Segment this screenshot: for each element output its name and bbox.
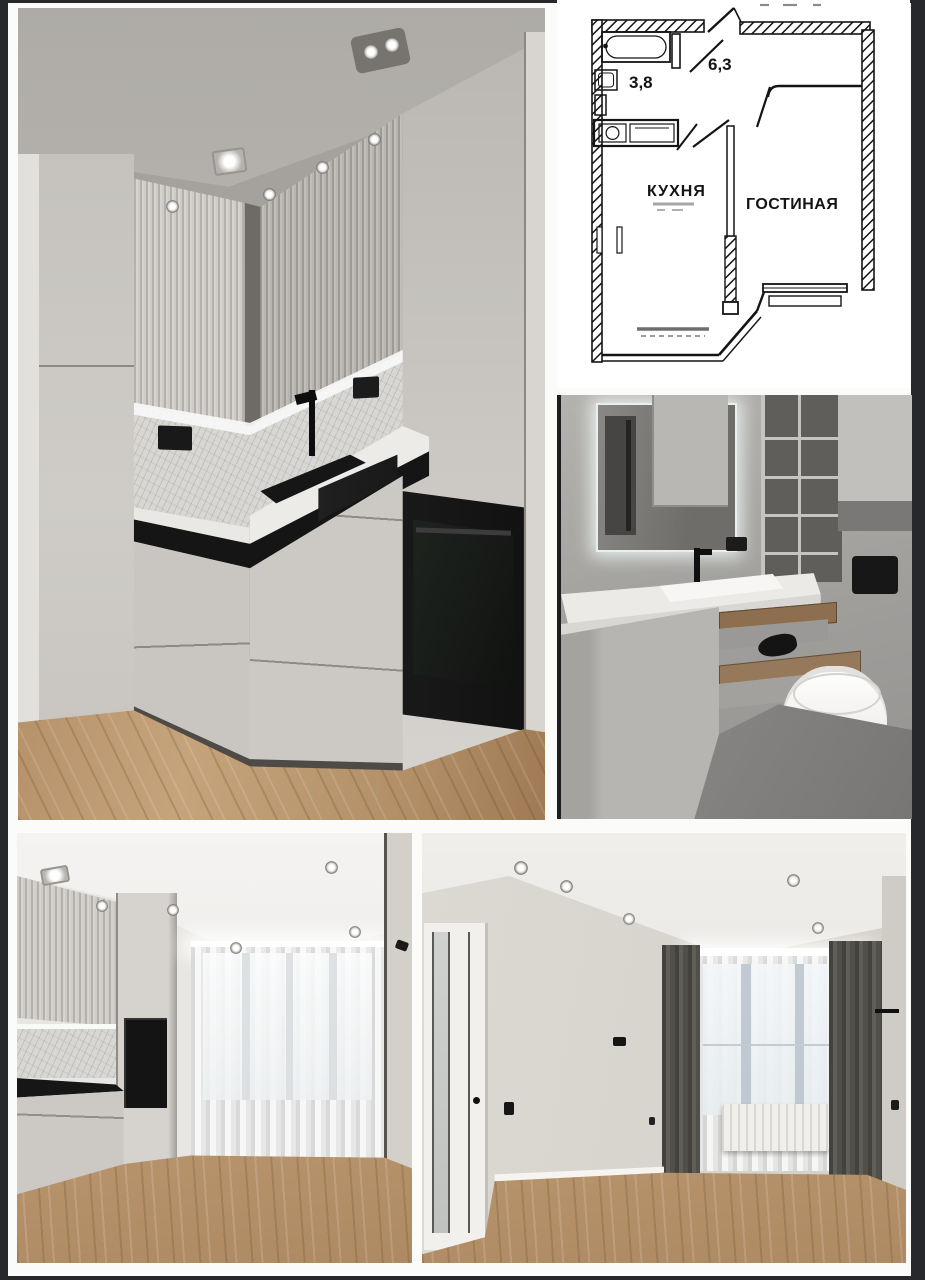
- right-niche: [838, 501, 912, 531]
- kl-led-strip: [17, 1024, 116, 1029]
- square-spotlight: [211, 147, 247, 176]
- kitchen-right-wall: [524, 32, 545, 730]
- lr-right-switch: [891, 1100, 899, 1110]
- kitchen-label: КУХНЯ: [647, 183, 706, 200]
- lr-switch: [504, 1102, 514, 1115]
- bathroom-partition: [672, 34, 723, 150]
- kitchen-left-wall: [18, 154, 41, 722]
- lr-drape-left: [662, 945, 701, 1173]
- lr-switch: [649, 1117, 655, 1125]
- kitchen-left-cabinet: [39, 154, 134, 722]
- backsplash-switch-panel: [158, 426, 192, 452]
- bathroom-faucet-spout: [694, 549, 712, 555]
- kl-backsplash: [17, 1027, 116, 1079]
- balcony-glazing: [602, 292, 764, 361]
- spotlight: [349, 926, 361, 938]
- lr-window-sill-line: [703, 1044, 848, 1046]
- backsplash-switch-panel-2: [353, 377, 379, 399]
- mirror-shower-reflection: [605, 416, 637, 535]
- mirror-cabinet: [652, 395, 728, 507]
- bathroom-photo[interactable]: [557, 395, 912, 819]
- kl-oven: [124, 1018, 167, 1108]
- toilet-seat-line: [793, 673, 881, 715]
- frame-right: [911, 0, 925, 1280]
- entrance-door: [708, 8, 741, 32]
- frame-bottom: [0, 1276, 925, 1280]
- spotlight: [623, 913, 635, 925]
- bathroom-area-label: 3,8: [629, 73, 653, 92]
- lr-radiator: [722, 1104, 828, 1151]
- spotlight: [316, 161, 329, 174]
- spotlight: [363, 44, 379, 60]
- lr-window-mullion: [795, 964, 805, 1115]
- kl-window-mullion: [329, 953, 337, 1099]
- kl-window-mullion: [242, 953, 250, 1099]
- lr-drape-right: [829, 941, 882, 1195]
- living-room-window: [763, 284, 847, 306]
- photo-collage: 3,8 6,3 КУХНЯ ГОСТИНАЯ: [0, 0, 925, 1280]
- upper-right-cabinet: [838, 395, 912, 504]
- spotlight: [166, 200, 179, 213]
- kitchen-left-cabinet-seam: [39, 365, 134, 367]
- bathroom-wall-switch: [726, 537, 747, 551]
- washer-and-vanity: [594, 120, 678, 146]
- kitchen-living-photo[interactable]: [17, 833, 412, 1263]
- frame-left: [0, 0, 8, 1280]
- living-room-label: ГОСТИНАЯ: [746, 196, 838, 213]
- spotlight: [96, 900, 108, 912]
- shelf-divider: [798, 395, 801, 582]
- spotlight: [812, 922, 824, 934]
- lr-door-glass: [432, 932, 451, 1233]
- lr-door-stile: [468, 932, 470, 1233]
- mirror-shower-bar: [626, 420, 631, 530]
- hallway-area-label: 6,3: [708, 55, 732, 74]
- lr-curtain-rod-end: [875, 1009, 899, 1013]
- kitchen-wall-marks: [597, 227, 622, 253]
- lr-window-mullion: [741, 964, 751, 1115]
- floorplan-diagram[interactable]: 3,8 6,3 КУХНЯ ГОСТИНАЯ: [557, 0, 910, 388]
- living-room-photo[interactable]: [422, 833, 906, 1263]
- lr-switch: [613, 1037, 626, 1046]
- lr-window-core: [703, 964, 848, 1115]
- kl-window-mullion: [286, 953, 294, 1099]
- kitchen-photo[interactable]: [18, 8, 545, 820]
- bathtub: [602, 32, 670, 62]
- toilet-flush-plate: [852, 556, 898, 594]
